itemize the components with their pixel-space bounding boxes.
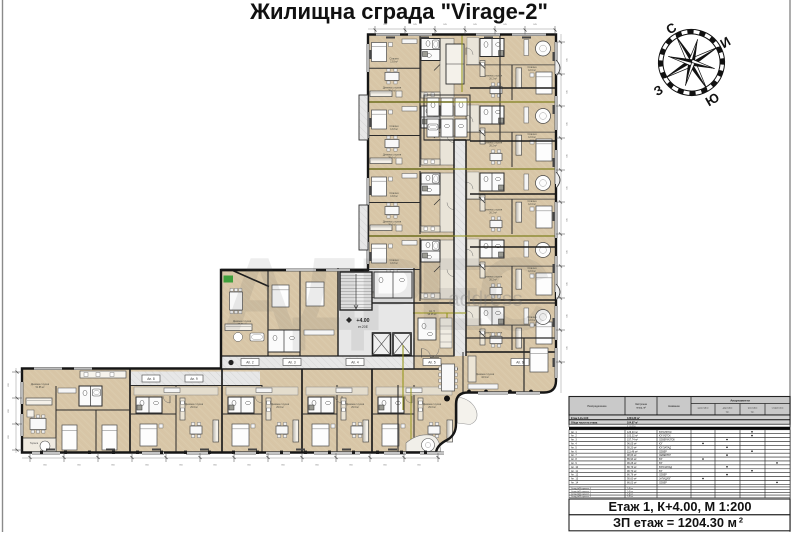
svg-text:Ап. 8: Ап. 8	[571, 458, 577, 461]
svg-text:Разпределение: Разпределение	[587, 404, 607, 408]
svg-text:Дневна с кухня: Дневна с кухня	[383, 86, 402, 90]
svg-text:Ап. 2: Ап. 2	[246, 361, 254, 365]
svg-text:86,03 м²: 86,03 м²	[627, 482, 637, 485]
svg-text:Спалня: Спалня	[527, 132, 537, 136]
svg-text:96,05 м²: 96,05 м²	[627, 443, 637, 446]
svg-text:12.6 м²: 12.6 м²	[528, 203, 536, 206]
svg-text:тристайни: тристайни	[748, 407, 758, 410]
svg-text:Ап. 12: Ап. 12	[571, 474, 579, 477]
svg-text:96,26 м²: 96,26 м²	[627, 462, 637, 465]
svg-text:98,63 м²: 98,63 м²	[627, 454, 637, 457]
svg-text:Название: Название	[668, 404, 680, 408]
svg-text:111,46 м²: 111,46 м²	[627, 450, 638, 453]
svg-text:12.6 м²: 12.6 м²	[528, 136, 536, 139]
svg-text:103,32 м²: 103,32 м²	[627, 435, 638, 438]
svg-text:Дневна с кухня: Дневна с кухня	[383, 153, 402, 157]
svg-text:13.8 м²: 13.8 м²	[390, 195, 398, 198]
svg-text:Склад №23 гараж ет. 1: Склад №23 гараж ет. 1	[571, 495, 591, 498]
svg-text:26.2 м²: 26.2 м²	[489, 212, 497, 215]
svg-text:157,74 м²: 157,74 м²	[627, 439, 638, 442]
svg-text:Ап. 6: Ап. 6	[516, 361, 524, 365]
svg-text:Ап. 5: Ап. 5	[428, 361, 436, 365]
svg-text:26.2 м²: 26.2 м²	[489, 145, 497, 148]
svg-text:44.9 м²: 44.9 м²	[481, 376, 489, 379]
svg-text:двустайни: двустайни	[723, 407, 733, 410]
svg-text:Спалня: Спалня	[527, 199, 537, 203]
svg-text:Спалня: Спалня	[389, 124, 399, 128]
svg-text:Тераса: Тераса	[30, 442, 39, 445]
svg-text:Апартаменти: Апартаменти	[730, 399, 750, 403]
svg-text:13.8 м²: 13.8 м²	[390, 128, 398, 131]
svg-text:Ап. 9: Ап. 9	[190, 377, 198, 381]
svg-text:96,70 м²: 96,70 м²	[627, 470, 637, 473]
svg-text:Спалня: Спалня	[389, 57, 399, 61]
svg-text:Етаж 1,К+4.00: Етаж 1,К+4.00	[571, 416, 589, 420]
svg-text:Ап. 4: Ап. 4	[571, 443, 577, 446]
svg-text:Дневна с кухня: Дневна с кухня	[271, 402, 290, 406]
svg-text:Спалня: Спалня	[527, 65, 537, 69]
svg-text:Спалня: Спалня	[389, 191, 399, 195]
svg-text:тер.: тер.	[726, 412, 730, 414]
svg-text:Дневна с кухня: Дневна с кухня	[476, 372, 495, 376]
svg-text:12.6 м²: 12.6 м²	[528, 69, 536, 72]
svg-text:Ап. 1: Ап. 1	[571, 431, 577, 434]
svg-text:Дневна с кухня: Дневна с кухня	[31, 382, 50, 386]
svg-text:13.8 м²: 13.8 м²	[390, 61, 398, 64]
svg-text:Дневна с кухня: Дневна с кухня	[346, 402, 365, 406]
svg-text:Ап. 14: Ап. 14	[571, 482, 579, 485]
svg-text:86,79 м²: 86,79 м²	[627, 466, 637, 469]
svg-text:Ап. 6: Ап. 6	[571, 450, 577, 453]
svg-text:едностайни: едностайни	[698, 407, 709, 410]
svg-text:51.85 м²: 51.85 м²	[36, 386, 45, 389]
svg-text:Ап. 4: Ап. 4	[351, 361, 359, 365]
svg-text:Ап. 3: Ап. 3	[288, 361, 296, 365]
svg-text:Ап. 8: Ап. 8	[147, 377, 155, 381]
svg-text:ЗП етаж = 1204.30 м: ЗП етаж = 1204.30 м	[613, 515, 737, 530]
svg-text:Дневна с кухня: Дневна с кухня	[423, 402, 442, 406]
svg-text:address: address	[448, 288, 523, 311]
svg-text:Ап. 9: Ап. 9	[571, 462, 577, 465]
svg-text:29.6 м²: 29.6 м²	[428, 406, 436, 409]
svg-text:Ап. 2: Ап. 2	[571, 435, 577, 438]
svg-text:26.2 м²: 26.2 м²	[489, 77, 497, 80]
svg-text:ЮГ/ЗАПАД: ЮГ/ЗАПАД	[659, 446, 671, 449]
svg-text:четиристайни: четиристайни	[772, 407, 783, 410]
svg-text:85,93 м²: 85,93 м²	[627, 458, 637, 461]
svg-text:ЗАПАД/ЮГ: ЗАПАД/ЮГ	[659, 478, 672, 481]
svg-text:Жилищна сграда "Virage-2": Жилищна сграда "Virage-2"	[249, 0, 548, 24]
svg-text:7,45 м²: 7,45 м²	[627, 495, 634, 498]
svg-text:86,76 м²: 86,76 м²	[627, 474, 637, 477]
svg-text:тер.: тер.	[751, 412, 755, 414]
svg-text:29.6 м²: 29.6 м²	[276, 406, 284, 409]
svg-text:Ап. 7: Ап. 7	[571, 454, 577, 457]
svg-text:1204,30 м²: 1204,30 м²	[627, 416, 640, 420]
svg-text:Ап. 10: Ап. 10	[571, 466, 579, 469]
svg-text:Ап. 5: Ап. 5	[571, 446, 577, 449]
svg-text:Дневна с кухня: Дневна с кухня	[484, 208, 503, 212]
svg-text:ЮГОЗАПАД: ЮГОЗАПАД	[659, 466, 672, 469]
svg-text:29.6 м²: 29.6 м²	[190, 406, 198, 409]
svg-text:площ, м²: площ, м²	[636, 407, 646, 410]
svg-text:95,60 м²: 95,60 м²	[627, 478, 637, 481]
svg-text:Дневна с кухня: Дневна с кухня	[185, 402, 204, 406]
svg-text:95,20 м²: 95,20 м²	[627, 446, 637, 449]
svg-text:29.6 м²: 29.6 м²	[351, 406, 359, 409]
svg-text:Етаж 1, К+4.00, М 1:200: Етаж 1, К+4.00, М 1:200	[608, 499, 751, 514]
svg-text:Ап. 11: Ап. 11	[571, 470, 579, 473]
svg-text:Ап. 13: Ап. 13	[571, 478, 579, 481]
svg-text:126,40 м²: 126,40 м²	[627, 431, 638, 434]
svg-text:Дневна с кухня: Дневна с кухня	[383, 220, 402, 224]
svg-text:2: 2	[739, 515, 743, 524]
svg-text:Ап. 3: Ап. 3	[571, 439, 577, 442]
